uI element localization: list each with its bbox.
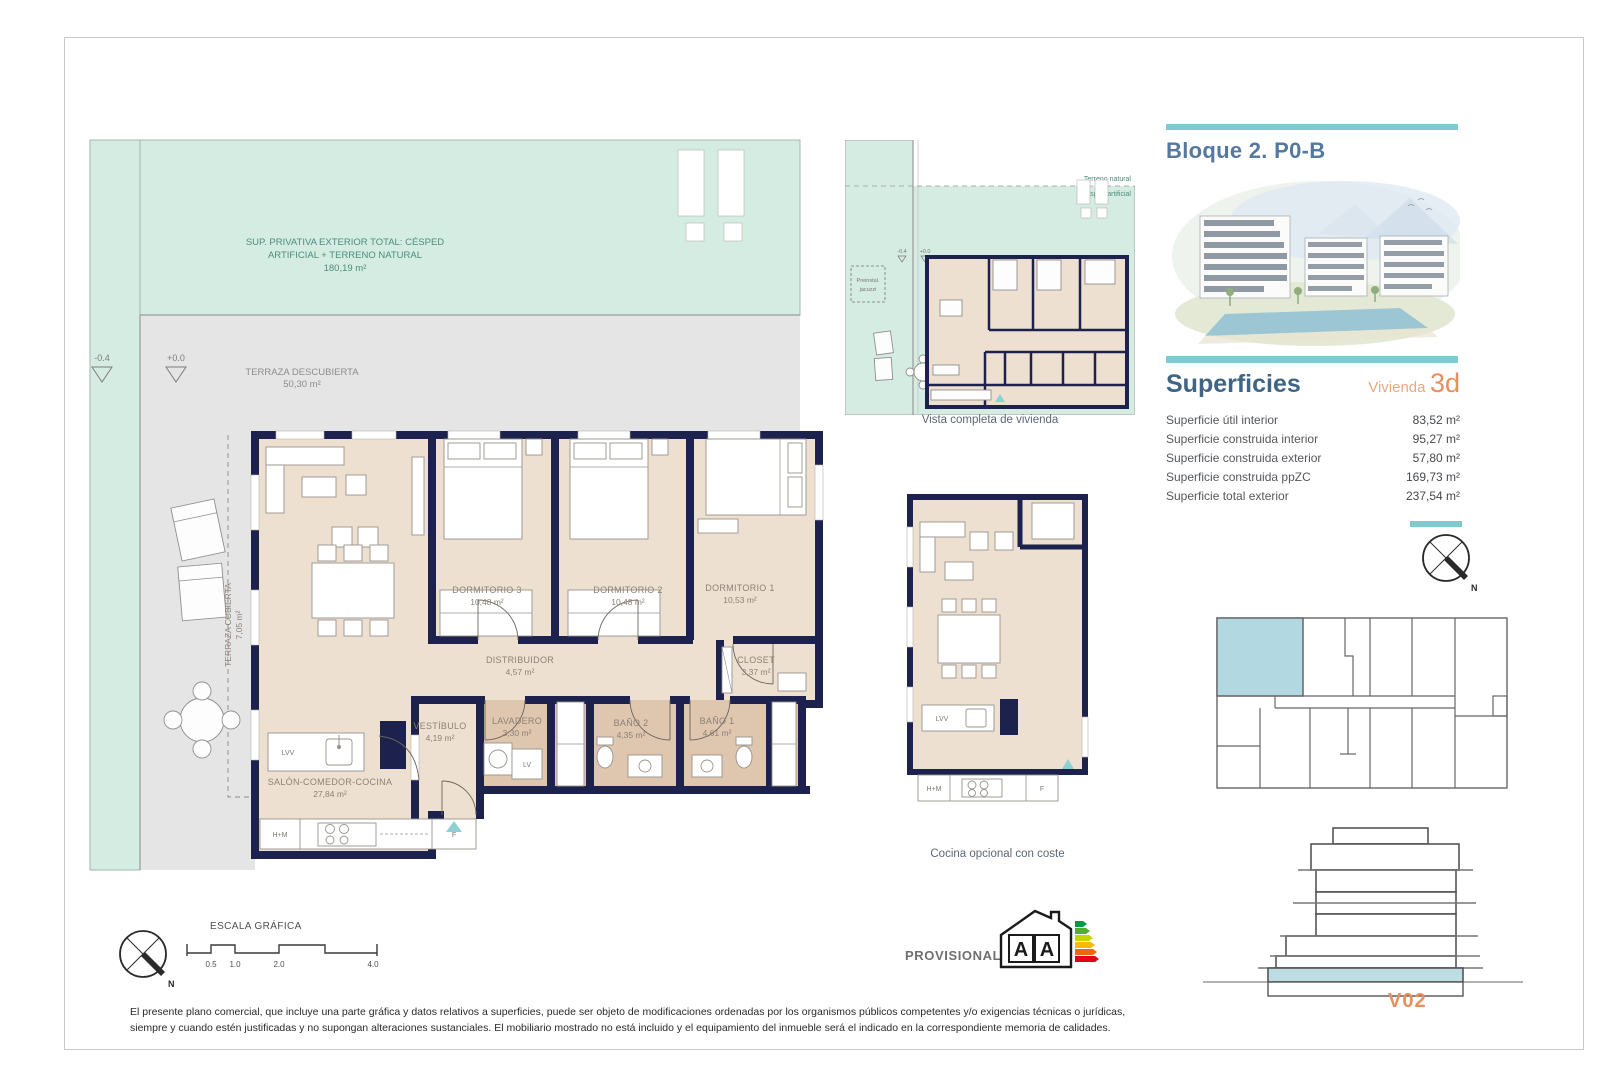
superficies-table: Superficie útil interior 83,52 m² Superf… bbox=[1166, 410, 1460, 505]
overview-footprint bbox=[927, 257, 1127, 407]
provisional-label: PROVISIONAL bbox=[905, 948, 1001, 963]
svg-text:10,53 m²: 10,53 m² bbox=[723, 595, 757, 605]
kitchen-counter: H+M F bbox=[260, 819, 476, 849]
north-label: N bbox=[1471, 583, 1478, 593]
elevation-highlight-floor bbox=[1268, 968, 1463, 982]
energy-letter-right: A bbox=[1040, 939, 1054, 961]
page-title: Bloque 2. P0-B bbox=[1166, 138, 1325, 164]
svg-text:Preinstal.: Preinstal. bbox=[857, 278, 880, 284]
lv-label: LV bbox=[523, 762, 531, 769]
hm-label: H+M bbox=[273, 832, 288, 839]
divider-bar-small bbox=[1410, 521, 1462, 527]
divider-bar-superficies bbox=[1166, 356, 1458, 363]
svg-text:0.5: 0.5 bbox=[205, 960, 217, 969]
svg-text:3,37 m²: 3,37 m² bbox=[742, 667, 771, 677]
svg-text:4,35 m²: 4,35 m² bbox=[617, 730, 646, 740]
svg-text:10,48 m²: 10,48 m² bbox=[470, 597, 504, 607]
kp-island: LVV bbox=[922, 705, 994, 731]
table-row: Superficie construida ppZC 169,73 m² bbox=[1166, 467, 1460, 486]
svg-text:7,05 m²: 7,05 m² bbox=[234, 610, 244, 639]
svg-text:1.0: 1.0 bbox=[229, 960, 241, 969]
superficies-header: Superficies Vivienda 3d bbox=[1166, 368, 1460, 399]
energy-letter-left: A bbox=[1014, 939, 1028, 961]
svg-text:10,48 m²: 10,48 m² bbox=[611, 597, 645, 607]
svg-text:4.0: 4.0 bbox=[367, 960, 379, 969]
compass-icon: N bbox=[1418, 530, 1482, 594]
svg-text:F: F bbox=[1040, 786, 1044, 793]
svg-text:DORMITORIO 3: DORMITORIO 3 bbox=[452, 585, 521, 595]
kitchen-plan: LVV H+M F bbox=[900, 487, 1095, 818]
table-row: Superficie útil interior 83,52 m² bbox=[1166, 410, 1460, 429]
svg-text:DORMITORIO 1: DORMITORIO 1 bbox=[705, 583, 774, 593]
building-rendering bbox=[1170, 176, 1460, 351]
overview-caption: Vista completa de vivienda bbox=[845, 414, 1135, 426]
compass-icon-bottom: N bbox=[115, 926, 179, 990]
vivienda-code: 3d bbox=[1430, 368, 1460, 398]
svg-text:VESTÍBULO: VESTÍBULO bbox=[413, 721, 466, 731]
legal-disclaimer: El presente plano comercial, que incluye… bbox=[130, 1004, 1145, 1037]
svg-text:2.0: 2.0 bbox=[273, 960, 285, 969]
svg-text:27,84 m²: 27,84 m² bbox=[313, 789, 347, 799]
terrace-side-zone bbox=[140, 435, 255, 870]
dining-table bbox=[312, 545, 394, 636]
table-row: Superficie construida exterior 57,80 m² bbox=[1166, 448, 1460, 467]
svg-text:LVV: LVV bbox=[936, 716, 949, 723]
kp-column bbox=[1000, 699, 1018, 735]
north-label-bottom: N bbox=[168, 979, 175, 989]
lvv-label: LVV bbox=[282, 750, 295, 757]
svg-text:DORMITORIO 2: DORMITORIO 2 bbox=[593, 585, 662, 595]
plan-sheet: El SUP. PRIVATIVA EXTERIOR TOTAL: CÉSPED… bbox=[0, 0, 1620, 1080]
kp-bed bbox=[1032, 503, 1074, 539]
svg-text:+0.0: +0.0 bbox=[920, 249, 931, 255]
terrace-table bbox=[180, 698, 224, 742]
level-zero: +0.0 bbox=[167, 353, 185, 363]
kp-counter: H+M F bbox=[918, 775, 1058, 801]
lawn-strip-left bbox=[90, 140, 140, 870]
svg-text:TERRAZA CUBIERTA: TERRAZA CUBIERTA bbox=[223, 583, 233, 667]
svg-text:LAVADERO: LAVADERO bbox=[492, 716, 542, 726]
scale-bar: 0.5 1.0 2.0 4.0 bbox=[185, 936, 390, 972]
main-floor-plan: SUP. PRIVATIVA EXTERIOR TOTAL: CÉSPED AR… bbox=[80, 135, 840, 880]
exterior-note-area: 180,19 m² bbox=[324, 263, 367, 274]
overview-plan: Terreno natural Césped artificial Preins… bbox=[845, 140, 1135, 415]
divider-bar-top bbox=[1166, 124, 1458, 130]
table-row: Superficie construida interior 95,27 m² bbox=[1166, 429, 1460, 448]
svg-text:3,30 m²: 3,30 m² bbox=[503, 728, 532, 738]
key-plan bbox=[1215, 616, 1515, 792]
svg-text:4,61 m²: 4,61 m² bbox=[703, 728, 732, 738]
kitchen-plan-caption: Cocina opcional con coste bbox=[880, 848, 1115, 860]
svg-text:BAÑO 1: BAÑO 1 bbox=[700, 716, 735, 726]
exterior-note-line2: ARTIFICIAL + TERRENO NATURAL bbox=[268, 250, 422, 261]
vivienda-label: Vivienda bbox=[1368, 379, 1425, 396]
kitchen-island: LVV bbox=[268, 733, 364, 771]
level-low: -0.4 bbox=[94, 353, 110, 363]
key-plan-highlight bbox=[1217, 618, 1303, 696]
svg-text:BAÑO 2: BAÑO 2 bbox=[614, 718, 649, 728]
version-label: V02 bbox=[1388, 990, 1427, 1013]
svg-text:4,19 m²: 4,19 m² bbox=[426, 733, 455, 743]
svg-text:4,57 m²: 4,57 m² bbox=[506, 667, 535, 677]
svg-text:CLOSET: CLOSET bbox=[737, 655, 775, 665]
svg-text:H+M: H+M bbox=[927, 786, 942, 793]
svg-text:SALÓN-COMEDOR-COCINA: SALÓN-COMEDOR-COCINA bbox=[268, 777, 393, 787]
svg-text:-0.4: -0.4 bbox=[897, 249, 906, 255]
terrace-open-zone bbox=[140, 315, 800, 435]
table-row: Superficie total exterior 237,54 m² bbox=[1166, 486, 1460, 505]
exterior-note-line1: SUP. PRIVATIVA EXTERIOR TOTAL: CÉSPED bbox=[246, 237, 444, 248]
svg-text:jacuzzi: jacuzzi bbox=[859, 287, 877, 293]
scale-bar-label: ESCALA GRÁFICA bbox=[210, 921, 302, 932]
svg-text:DISTRIBUIDOR: DISTRIBUIDOR bbox=[486, 655, 554, 665]
terraza-descubierta-area: 50,30 m² bbox=[283, 379, 321, 390]
superficies-heading: Superficies bbox=[1166, 370, 1301, 399]
f-label: F bbox=[452, 832, 456, 839]
building-elevation bbox=[1198, 820, 1528, 1000]
kp-dining-table bbox=[938, 599, 1000, 678]
energy-rating-logo: A A bbox=[993, 903, 1103, 973]
terraza-descubierta-name: TERRAZA DESCUBIERTA bbox=[245, 367, 359, 378]
energy-bars bbox=[1075, 921, 1099, 962]
